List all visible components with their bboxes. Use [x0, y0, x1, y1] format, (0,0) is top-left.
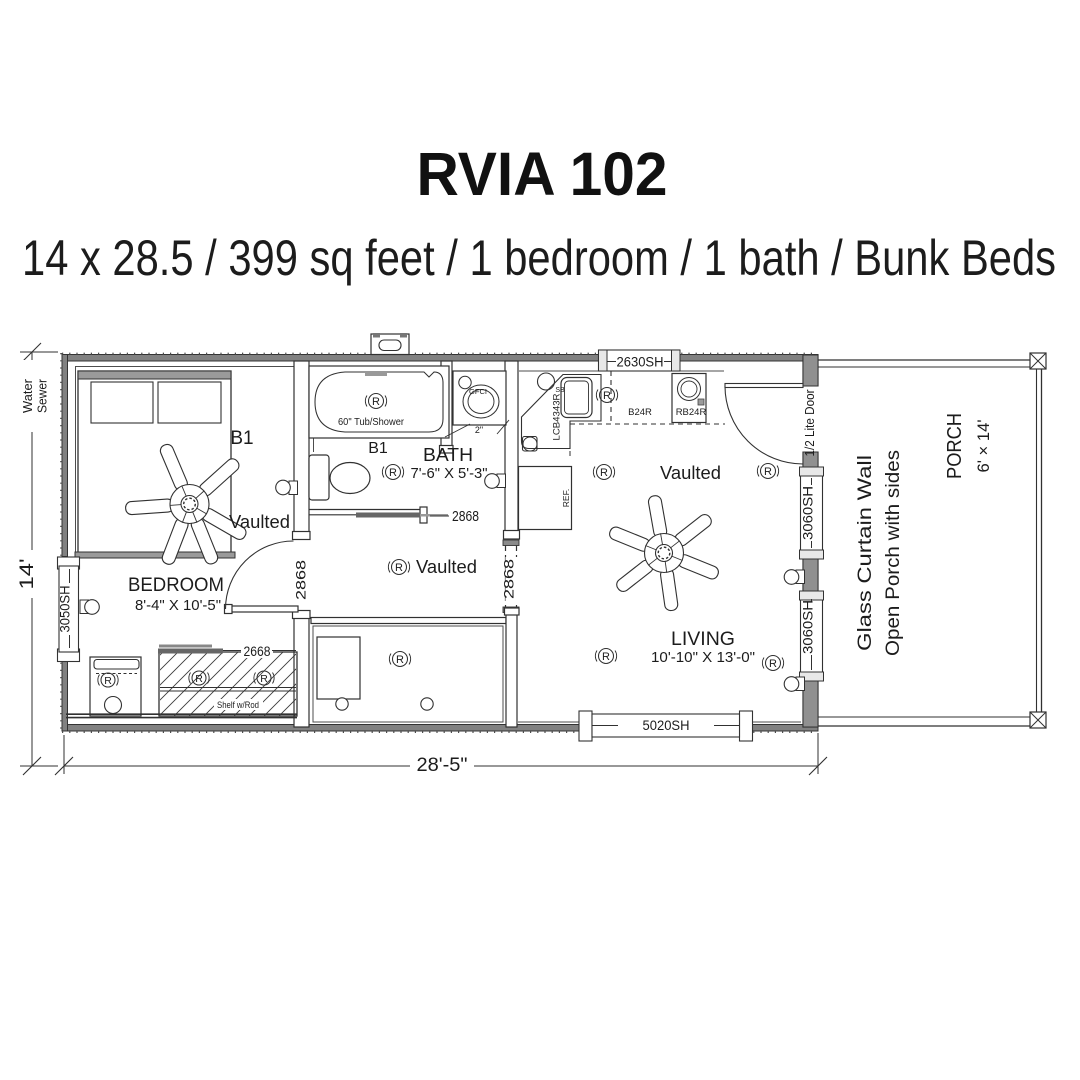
svg-text:GFCI: GFCI: [469, 387, 487, 396]
svg-text:Sewer: Sewer: [35, 378, 50, 413]
svg-text:R: R: [764, 466, 772, 478]
svg-text:R: R: [195, 673, 203, 685]
svg-text:REF.: REF.: [561, 489, 571, 507]
svg-text:7'-6" X 5'-3": 7'-6" X 5'-3": [411, 465, 488, 482]
svg-text:2630SH: 2630SH: [617, 355, 664, 370]
svg-text:R: R: [603, 390, 611, 402]
svg-text:2868: 2868: [502, 559, 517, 599]
svg-text:2868: 2868: [452, 509, 479, 525]
svg-text:PORCH: PORCH: [944, 413, 966, 479]
svg-text:Open Porch with sides: Open Porch with sides: [883, 450, 904, 656]
svg-text:R: R: [396, 654, 404, 666]
svg-text:14 x 28.5 / 399 sq feet / 1 be: 14 x 28.5 / 399 sq feet / 1 bedroom / 1 …: [22, 230, 1056, 286]
svg-text:B1: B1: [368, 440, 388, 457]
svg-text:60" Tub/Shower: 60" Tub/Shower: [338, 416, 404, 428]
svg-text:RVIA 102: RVIA 102: [417, 140, 668, 208]
svg-text:R: R: [769, 658, 777, 670]
svg-text:R: R: [600, 467, 608, 479]
svg-text:Shelf w/Rod: Shelf w/Rod: [217, 700, 259, 711]
svg-text:R: R: [389, 467, 397, 479]
svg-text:3060SH: 3060SH: [801, 600, 816, 654]
svg-text:BATH: BATH: [423, 444, 473, 465]
svg-text:3060SH: 3060SH: [801, 486, 816, 540]
svg-text:RB24R: RB24R: [676, 407, 707, 418]
svg-text:R: R: [260, 673, 268, 685]
svg-text:SB: SB: [555, 387, 565, 394]
svg-text:2868: 2868: [294, 560, 309, 600]
svg-text:B24R: B24R: [628, 407, 652, 418]
svg-text:B1: B1: [230, 428, 253, 449]
svg-text:Glass Curtain Wall: Glass Curtain Wall: [855, 455, 876, 651]
svg-text:3050SH: 3050SH: [58, 586, 73, 633]
svg-text:5020SH: 5020SH: [643, 718, 690, 733]
svg-text:8'-4" X 10'-5": 8'-4" X 10'-5": [135, 597, 221, 614]
svg-text:LCB4343R: LCB4343R: [552, 393, 563, 440]
svg-text:14': 14': [17, 559, 38, 590]
svg-text:1/2 Lite Door: 1/2 Lite Door: [803, 390, 817, 457]
svg-text:R: R: [395, 562, 403, 574]
svg-text:Vaulted: Vaulted: [229, 512, 290, 532]
svg-text:2": 2": [475, 425, 483, 435]
svg-text:BEDROOM: BEDROOM: [128, 575, 224, 596]
svg-text:Vaulted: Vaulted: [660, 463, 721, 483]
svg-text:28'-5": 28'-5": [417, 755, 468, 776]
svg-text:R: R: [602, 651, 610, 663]
svg-text:Vaulted: Vaulted: [416, 557, 477, 577]
svg-text:R: R: [372, 396, 380, 408]
svg-text:2668: 2668: [244, 644, 271, 659]
svg-text:10'-10" X 13'-0": 10'-10" X 13'-0": [651, 649, 755, 666]
svg-text:R: R: [104, 675, 112, 687]
svg-text:6' × 14': 6' × 14': [974, 420, 993, 473]
svg-text:Water: Water: [20, 378, 35, 413]
svg-text:LIVING: LIVING: [671, 629, 735, 650]
